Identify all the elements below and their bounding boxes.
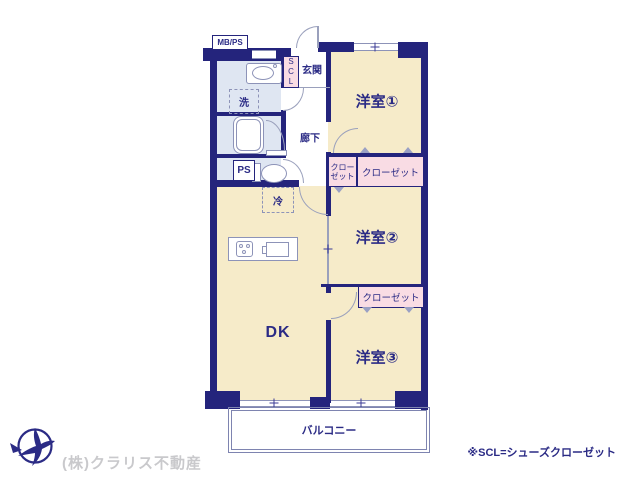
stove-burner (242, 250, 246, 254)
label-balcony: バルコニー (302, 422, 357, 438)
closet-room3: クローゼット (358, 286, 424, 308)
company-name: (株)クラリス不動産 (62, 452, 202, 473)
washbasin-bowl (252, 66, 274, 80)
fridge-space: 冷 (262, 187, 294, 213)
wall-left (210, 48, 217, 393)
wall-right (421, 42, 428, 410)
fridge-label: 冷 (273, 193, 283, 208)
floor-plan: SCL クロー ゼット クローゼット クローゼット 洗 冷 MB/PS (0, 0, 640, 480)
bath-counter (266, 150, 287, 156)
bathtub-inner (236, 119, 261, 151)
closet-small-label-line2: ゼット (331, 172, 355, 181)
label-room1: 洋室① (356, 91, 399, 112)
stove-burner (246, 244, 250, 248)
closet-door-mark (362, 307, 372, 313)
closet-room3-label: クローゼット (362, 290, 419, 304)
company-logo (8, 423, 58, 471)
wall-top-entrance-right (318, 42, 354, 52)
window-washroom (252, 50, 276, 59)
label-room2: 洋室② (356, 227, 399, 248)
closet-room1-label: クローゼット (362, 165, 419, 179)
closet-door-mark (360, 147, 370, 153)
label-corridor: 廊下 (300, 130, 320, 145)
shoe-closet-scl: SCL (283, 56, 299, 88)
washbasin-faucet (273, 64, 277, 68)
stove (236, 241, 253, 257)
stove-burner (239, 244, 243, 248)
sink-faucet (262, 246, 267, 254)
label-room3: 洋室③ (356, 347, 399, 368)
wall-corridor-right-upper (326, 42, 331, 122)
window-tick-room1 (371, 43, 380, 52)
wall-dk-room3 (326, 320, 331, 403)
scl-note: ※SCL=シューズクローゼット (467, 444, 616, 460)
bird-logo-icon (8, 423, 58, 471)
scl-label: SCL (287, 57, 296, 87)
closet-door-mark (403, 147, 413, 153)
mbps-label: MB/PS (217, 38, 242, 47)
pipe-space-box: PS (233, 160, 255, 181)
toilet-bowl (261, 164, 287, 183)
closet-room1-wide: クローゼット (357, 156, 424, 187)
closet-door-mark (334, 187, 344, 193)
partition-tick (324, 245, 333, 254)
label-genkan: 玄関 (302, 62, 322, 77)
closet-room2-small: クロー ゼット (328, 156, 357, 187)
washroom-door-arc (283, 88, 304, 111)
ps-label: PS (237, 165, 250, 176)
dk-floor (214, 186, 330, 403)
meter-box: MB/PS (212, 35, 248, 50)
balcony: バルコニー (228, 407, 430, 453)
washer-space: 洗 (229, 89, 259, 114)
closet-door-mark (404, 307, 414, 313)
entrance-door-leaf (317, 26, 319, 48)
label-dk: DK (265, 324, 290, 342)
kitchen-sink (266, 242, 289, 257)
closet-small-label-line1: クロー (331, 163, 355, 172)
entrance-door-arc (296, 26, 318, 48)
washer-label: 洗 (239, 94, 249, 109)
